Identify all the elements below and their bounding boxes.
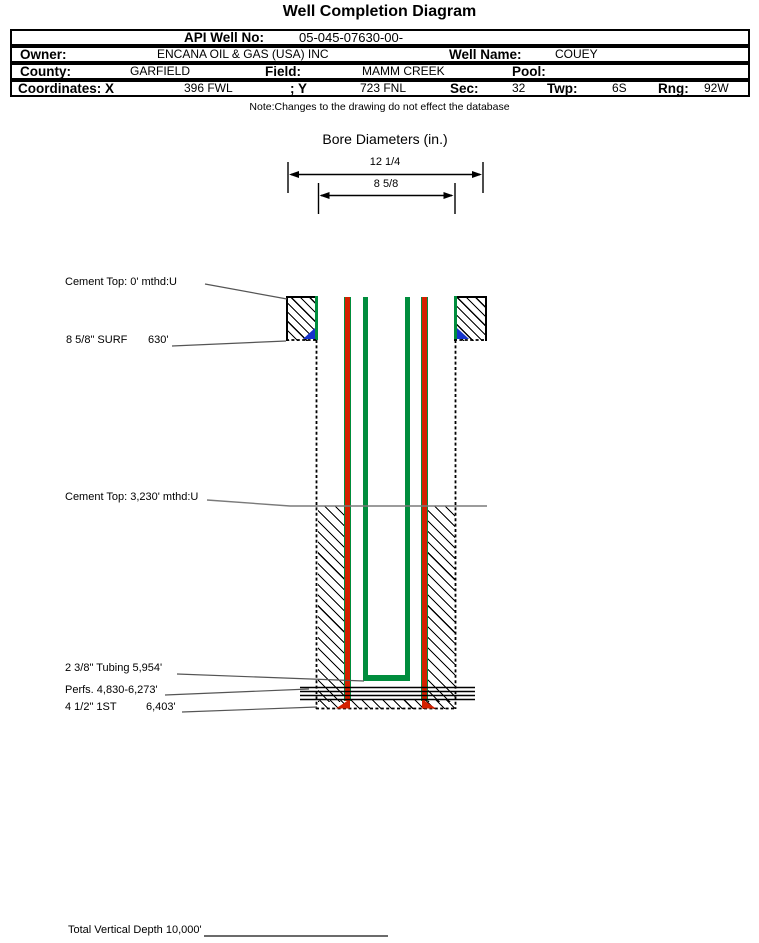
coordinates-label: Coordinates: X bbox=[18, 82, 114, 95]
outer-diameter-label: 12 1/4 bbox=[345, 156, 425, 168]
surface-casing-label: 8 5/8" SURF bbox=[66, 334, 127, 346]
twp-label: Twp: bbox=[547, 82, 578, 95]
table-row-api: API Well No: 05-045-07630-00- bbox=[10, 29, 750, 46]
production-casing-line-left bbox=[344, 297, 351, 701]
county-value: GARFIELD bbox=[130, 65, 190, 78]
tubing-string bbox=[363, 297, 410, 681]
table-row-county: County: GARFIELD Field: MAMM CREEK Pool: bbox=[10, 63, 750, 80]
field-label: Field: bbox=[265, 65, 301, 78]
dimension-8-5-8-arrowheads bbox=[320, 192, 454, 199]
leader-cement-top-surface bbox=[205, 284, 287, 299]
cement-top-production-label: Cement Top: 3,230' mthd:U bbox=[65, 491, 198, 503]
rng-label: Rng: bbox=[658, 82, 689, 95]
total-depth-label: Total Vertical Depth 10,000' bbox=[68, 924, 202, 936]
surface-casing-line-left bbox=[315, 296, 318, 340]
owner-label: Owner: bbox=[20, 48, 67, 61]
bore-diameters-title: Bore Diameters (in.) bbox=[285, 131, 485, 147]
rng-value: 92W bbox=[704, 82, 729, 95]
page-title: Well Completion Diagram bbox=[0, 3, 759, 21]
coordinate-y-label: ; Y bbox=[290, 82, 307, 95]
surface-casing-line-right bbox=[454, 296, 457, 340]
inner-diameter-label: 8 5/8 bbox=[346, 178, 426, 190]
field-value: MAMM CREEK bbox=[362, 65, 445, 78]
table-row-coordinates: Coordinates: X 396 FWL ; Y 723 FNL Sec: … bbox=[10, 80, 750, 97]
table-row-owner: Owner: ENCANA OIL & GAS (USA) INC Well N… bbox=[10, 46, 750, 63]
leader-perforations bbox=[165, 689, 309, 695]
production-casing-line-right bbox=[421, 297, 428, 701]
bottom-cement-band bbox=[317, 700, 456, 709]
database-note: Note:Changes to the drawing do not effec… bbox=[0, 101, 759, 113]
well-name-label: Well Name: bbox=[449, 48, 522, 61]
api-well-no-label: API Well No: bbox=[184, 31, 264, 44]
coordinate-x-value: 396 FWL bbox=[184, 82, 233, 95]
production-casing-depth: 6,403' bbox=[146, 701, 176, 713]
production-cement-left bbox=[318, 506, 344, 702]
county-label: County: bbox=[20, 65, 71, 78]
pool-label: Pool: bbox=[512, 65, 546, 78]
sec-label: Sec: bbox=[450, 82, 479, 95]
production-casing-label: 4 1/2" 1ST bbox=[65, 701, 117, 713]
surface-cement-block-left bbox=[286, 296, 317, 341]
surface-casing-depth: 630' bbox=[148, 334, 168, 346]
coordinate-y-value: 723 FNL bbox=[360, 82, 406, 95]
well-completion-diagram-page: Well Completion Diagram API Well No: 05-… bbox=[0, 0, 759, 943]
perforations-label: Perfs. 4,830-6,273' bbox=[65, 684, 158, 696]
surface-cement-block-right bbox=[454, 296, 487, 341]
cement-top-surface-label: Cement Top: 0' mthd:U bbox=[65, 276, 177, 288]
twp-value: 6S bbox=[612, 82, 627, 95]
dimension-12-1-4-arrowheads bbox=[289, 171, 482, 178]
api-well-no-value: 05-045-07630-00- bbox=[299, 31, 403, 44]
owner-value: ENCANA OIL & GAS (USA) INC bbox=[157, 48, 329, 61]
tubing-label: 2 3/8" Tubing 5,954' bbox=[65, 662, 162, 674]
sec-value: 32 bbox=[512, 82, 525, 95]
leader-production-casing bbox=[182, 707, 317, 712]
well-name-value: COUEY bbox=[555, 48, 598, 61]
leader-surface-casing bbox=[172, 341, 286, 346]
production-cement-right bbox=[428, 506, 455, 702]
